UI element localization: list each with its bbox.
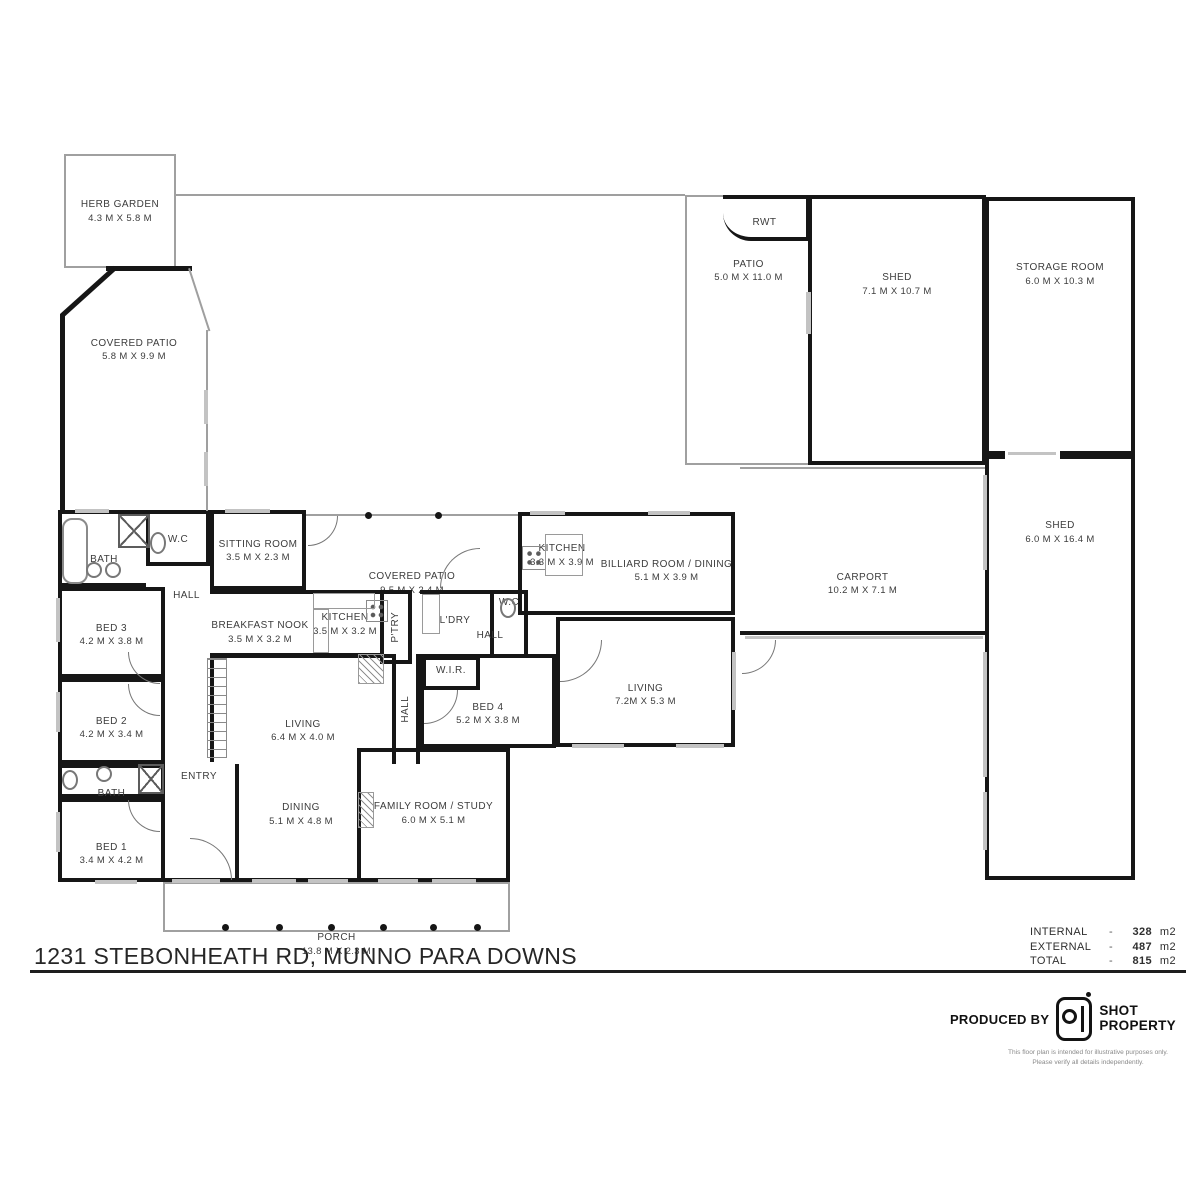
room-name-label: SHED [1045, 520, 1075, 533]
area-dash: - [1102, 925, 1120, 940]
hatch-icon [358, 792, 374, 828]
area-unit: m2 [1152, 954, 1176, 969]
area-dash: - [1102, 940, 1120, 955]
brand-line-1: SHOT [1099, 1004, 1176, 1019]
room-name-label: HALL [477, 630, 504, 643]
room-name-label: HALL [173, 590, 200, 603]
area-row-external: EXTERNAL - 487 m2 [1030, 940, 1176, 955]
room-dimensions-label: 6.0 M X 5.1 M [402, 815, 466, 827]
area-value: 487 [1120, 940, 1152, 955]
room-covered-patio-front: COVERED PATIO9.5 M X 2.4 M [306, 514, 518, 588]
toilet-icon [150, 532, 166, 554]
room-shed-rear: SHED7.1 M X 10.7 M [808, 195, 986, 465]
window-icon [56, 692, 60, 732]
toilet-icon [500, 598, 516, 618]
room-hall-west: HALL [163, 566, 210, 656]
room-dimensions-label: 3.5 M X 3.2 M [228, 634, 292, 646]
room-dimensions-label: 5.8 M X 9.9 M [102, 351, 166, 363]
boundary-top-icon [176, 194, 685, 196]
logo-circle [1062, 1009, 1077, 1024]
floor-plan-page: HERB GARDEN4.3 M X 5.8 MCOVERED PATIO5.8… [0, 0, 1200, 1200]
porch-post-icon [328, 924, 335, 931]
toilet-icon [62, 770, 78, 790]
disclaimer-text: This floor plan is intended for illustra… [1000, 1048, 1176, 1068]
window-icon [732, 652, 736, 710]
area-label: TOTAL [1030, 954, 1102, 969]
patio-wall-left-icon [60, 314, 65, 511]
window-icon [983, 792, 987, 850]
property-address-title: 1231 STEBONHEATH RD, MUNNO PARA DOWNS [34, 943, 577, 970]
island-bench-icon [545, 534, 583, 576]
room-name-label: STORAGE ROOM [1016, 262, 1104, 275]
room-herb-garden: HERB GARDEN4.3 M X 5.8 M [64, 154, 176, 268]
area-row-total: TOTAL - 815 m2 [1030, 954, 1176, 969]
cooktop-icon [522, 546, 546, 570]
room-wir: W.I.R. [422, 656, 480, 690]
room-name-label: BED 2 [96, 716, 127, 729]
produced-by-label: PRODUCED BY [950, 1012, 1049, 1027]
room-covered-patio-rear: COVERED PATIO5.8 M X 9.9 M [60, 268, 208, 510]
room-storage-room: STORAGE ROOM6.0 M X 10.3 M [985, 197, 1135, 455]
room-hall-center: HALL [455, 624, 525, 656]
window-icon [204, 452, 208, 486]
porch-post-icon [474, 924, 481, 931]
room-name-label: SHED [882, 272, 912, 285]
window-icon [648, 511, 690, 515]
patio-post-icon [435, 512, 442, 519]
cabinet-icon [422, 594, 440, 634]
room-dimensions-label: 4.3 M X 5.8 M [88, 213, 152, 225]
room-name-label: RWT [753, 217, 777, 230]
room-name-label: BED 1 [96, 842, 127, 855]
window-icon [676, 744, 724, 748]
room-dimensions-label: 10.2 M X 7.1 M [828, 585, 897, 597]
room-name-label: BED 3 [96, 623, 127, 636]
bench-icon [313, 593, 375, 609]
window-icon [252, 879, 296, 883]
area-unit: m2 [1152, 940, 1176, 955]
room-name-label: FAMILY ROOM / STUDY [374, 801, 493, 814]
bathtub-icon [62, 518, 88, 584]
room-sitting-room: SITTING ROOM3.5 M X 2.3 M [210, 510, 306, 590]
porch-post-icon [222, 924, 229, 931]
area-value: 328 [1120, 925, 1152, 940]
footer-divider [30, 970, 1186, 973]
room-dimensions-label: 5.2 M X 3.8 M [456, 715, 520, 727]
room-dimensions-label: 6.0 M X 16.4 M [1025, 534, 1094, 546]
room-name-label: SITTING ROOM [219, 539, 298, 552]
window-icon [308, 879, 348, 883]
room-name-label: ENTRY [181, 771, 217, 784]
room-name-label: COVERED PATIO [91, 338, 178, 351]
window-icon [56, 812, 60, 852]
window-icon [530, 511, 565, 515]
room-name-label: HERB GARDEN [81, 199, 159, 212]
room-dimensions-label: 5.1 M X 4.8 M [269, 816, 333, 828]
room-breakfast-nook: BREAKFAST NOOK3.5 M X 3.2 M [210, 590, 310, 657]
room-carport: CARPORT10.2 M X 7.1 M [740, 467, 985, 635]
shed-door-track-icon [1008, 452, 1056, 455]
room-dimensions-label: 4.2 M X 3.4 M [80, 729, 144, 741]
room-name-label: DINING [282, 802, 320, 815]
room-dimensions-label: 3.5 M X 2.3 M [226, 552, 290, 564]
room-name-label: W.C [168, 534, 188, 547]
porch-post-icon [430, 924, 437, 931]
porch-post-icon [380, 924, 387, 931]
area-label: EXTERNAL [1030, 940, 1102, 955]
area-row-internal: INTERNAL - 328 m2 [1030, 925, 1176, 940]
window-icon [75, 509, 109, 513]
room-dimensions-label: 3.4 M X 4.2 M [80, 855, 144, 867]
bench-icon [313, 609, 329, 653]
room-dining: DINING5.1 M X 4.8 M [235, 764, 363, 882]
shed-rear-window-icon [806, 292, 811, 334]
stairs-icon [207, 658, 227, 758]
window-icon [225, 509, 270, 513]
room-name-label: W.I.R. [436, 665, 466, 678]
area-dash: - [1102, 954, 1120, 969]
room-rwt: RWT [723, 195, 810, 241]
window-icon [572, 744, 624, 748]
room-dimensions-label: 6.0 M X 10.3 M [1025, 276, 1094, 288]
room-name-label: BREAKFAST NOOK [211, 620, 308, 633]
porch-post-icon [276, 924, 283, 931]
window-icon [95, 880, 137, 884]
producer-brand-block: PRODUCED BY SHOT PROPERTY [950, 997, 1176, 1041]
hatch-icon [358, 654, 384, 684]
vanity-sink-icon [105, 562, 121, 578]
shower-icon [138, 764, 164, 794]
logo-bar [1081, 1006, 1084, 1032]
window-icon [432, 879, 476, 883]
room-family-room: FAMILY ROOM / STUDY6.0 M X 5.1 M [357, 748, 510, 882]
room-dimensions-label: 4.2 M X 3.8 M [80, 636, 144, 648]
logo-dot [1086, 992, 1091, 997]
room-dimensions-label: 5.1 M X 3.9 M [635, 572, 699, 584]
vanity-sink-icon [96, 766, 112, 782]
patio-post-icon [365, 512, 372, 519]
shower-icon [118, 514, 150, 548]
patio-wall-top-icon [106, 266, 192, 271]
room-name-label: P'TRY [390, 612, 403, 643]
room-name-label: CARPORT [837, 572, 889, 585]
room-dimensions-label: 6.4 M X 4.0 M [271, 732, 335, 744]
shot-property-logo-icon [1056, 997, 1092, 1041]
room-shed-side: SHED6.0 M X 16.4 M [985, 455, 1135, 880]
window-icon [983, 652, 987, 777]
room-name-label: PATIO [733, 259, 764, 272]
room-name-label: BED 4 [472, 702, 503, 715]
window-icon [56, 598, 60, 642]
room-dimensions-label: 7.2M X 5.3 M [615, 696, 676, 708]
room-billiard-room: BILLIARD ROOM / DINING5.1 M X 3.9 M [602, 512, 735, 615]
area-value: 815 [1120, 954, 1152, 969]
window-icon [378, 879, 418, 883]
window-icon [983, 475, 987, 570]
carport-door-icon [742, 640, 776, 674]
room-name-label: HALL [400, 696, 413, 723]
room-living-2: LIVING7.2M X 5.3 M [556, 617, 735, 747]
area-label: INTERNAL [1030, 925, 1102, 940]
window-icon [204, 390, 208, 424]
area-summary-table: INTERNAL - 328 m2 EXTERNAL - 487 m2 TOTA… [1030, 925, 1176, 969]
room-name-label: BILLIARD ROOM / DINING [601, 559, 733, 572]
room-dimensions-label: 7.1 M X 10.7 M [862, 286, 931, 298]
room-name-label: LIVING [285, 719, 321, 732]
area-unit: m2 [1152, 925, 1176, 940]
brand-name: SHOT PROPERTY [1099, 1004, 1176, 1033]
brand-line-2: PROPERTY [1099, 1019, 1176, 1034]
carport-glass-icon [745, 636, 983, 639]
room-dimensions-label: 5.0 M X 11.0 M [714, 272, 783, 284]
room-porch: PORCH13.8 M X 2.3 M [163, 882, 510, 932]
vanity-sink-icon [86, 562, 102, 578]
room-name-label: LIVING [628, 683, 664, 696]
